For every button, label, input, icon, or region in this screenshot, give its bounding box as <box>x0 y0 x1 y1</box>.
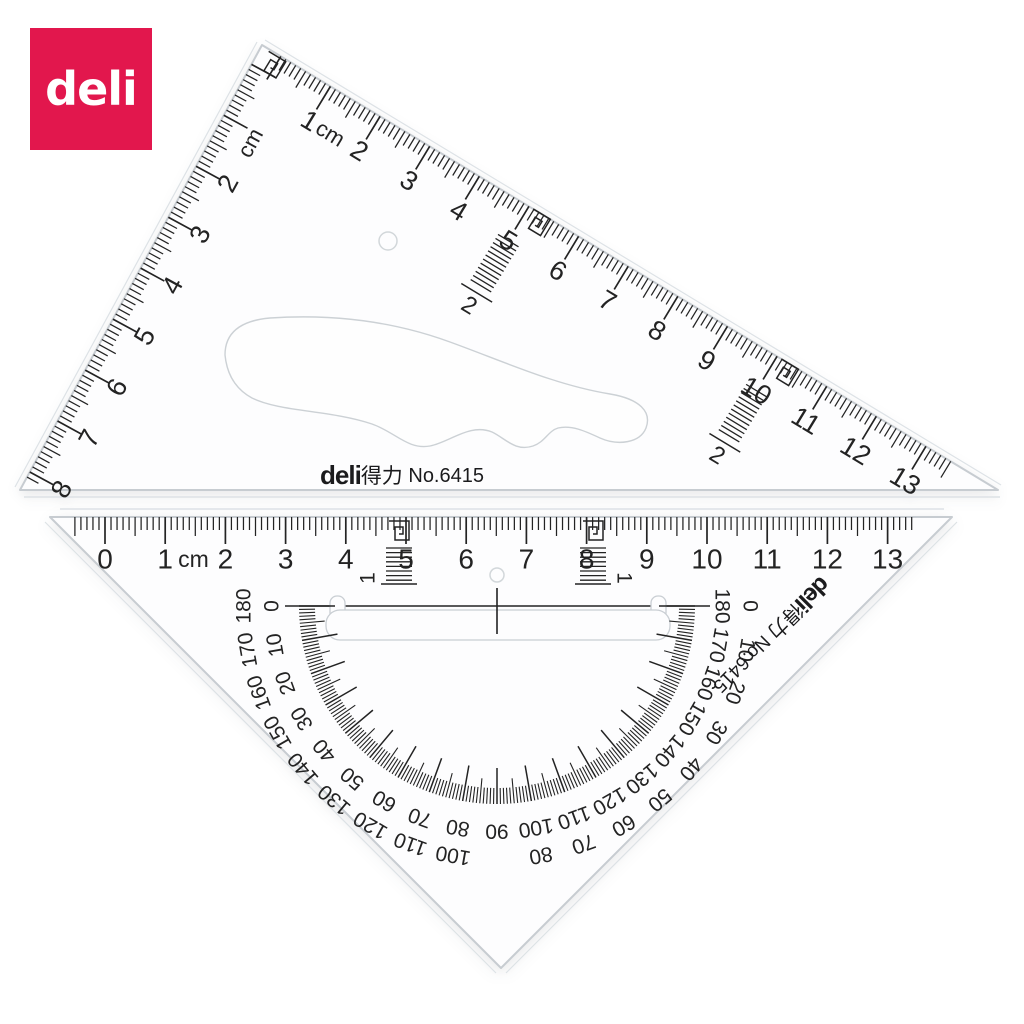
svg-text:cm: cm <box>178 546 209 572</box>
svg-text:80: 80 <box>527 842 554 869</box>
protractor-set-square: 012345678910111213cm11018010170201603015… <box>45 509 957 973</box>
svg-text:80: 80 <box>444 814 471 841</box>
svg-text:1: 1 <box>357 572 380 584</box>
svg-text:0: 0 <box>261 600 284 612</box>
svg-text:1: 1 <box>612 572 635 584</box>
svg-text:0: 0 <box>97 543 113 574</box>
svg-text:11: 11 <box>753 543 782 574</box>
svg-text:90: 90 <box>485 819 508 842</box>
top-set-square: 12345678910111213cm2345678cm22deli得力 No.… <box>15 40 1001 503</box>
svg-text:1: 1 <box>157 543 173 574</box>
set-square-photo: 12345678910111213cm2345678cm22deli得力 No.… <box>0 0 1024 1024</box>
svg-text:7: 7 <box>519 543 535 574</box>
brand-model-text: deli得力 No.6415 <box>320 460 484 490</box>
grip-slot <box>326 610 670 640</box>
svg-text:12: 12 <box>812 543 843 574</box>
svg-text:180: 180 <box>710 588 733 623</box>
svg-text:10: 10 <box>691 543 722 574</box>
svg-text:2: 2 <box>218 543 234 574</box>
svg-text:13: 13 <box>872 543 903 574</box>
svg-text:3: 3 <box>278 543 294 574</box>
svg-text:10: 10 <box>262 632 289 659</box>
svg-text:9: 9 <box>639 543 655 574</box>
svg-text:4: 4 <box>338 543 354 574</box>
svg-text:0: 0 <box>738 600 761 612</box>
product-photo-stage: deli 12345678910111213cm2345678cm22deli得… <box>0 0 1024 1024</box>
svg-text:180: 180 <box>233 588 256 623</box>
svg-text:6: 6 <box>458 543 474 574</box>
